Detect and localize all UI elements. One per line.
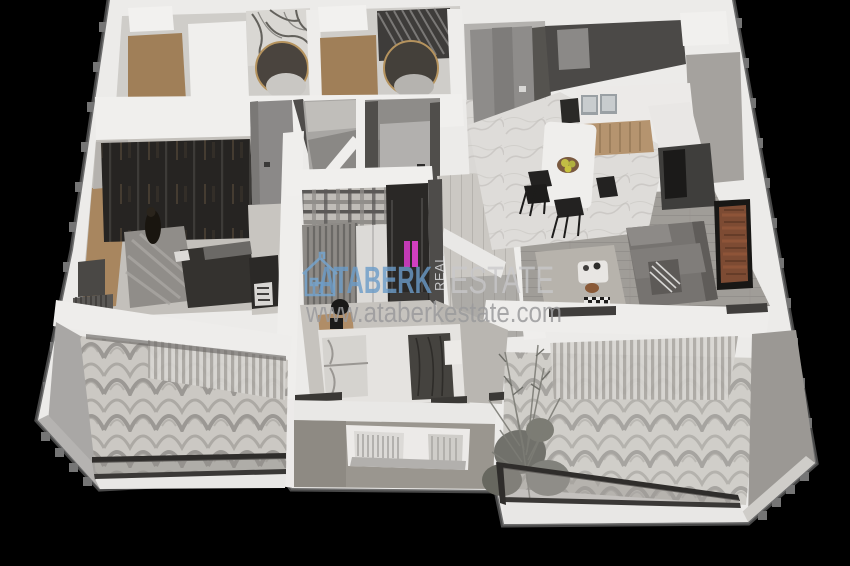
svg-text:ESTATE: ESTATE xyxy=(450,260,554,302)
svg-text:www.ataberkestate.com: www.ataberkestate.com xyxy=(305,297,562,329)
svg-text:ATABERK: ATABERK xyxy=(318,260,432,302)
svg-text:REAL: REAL xyxy=(432,255,447,291)
